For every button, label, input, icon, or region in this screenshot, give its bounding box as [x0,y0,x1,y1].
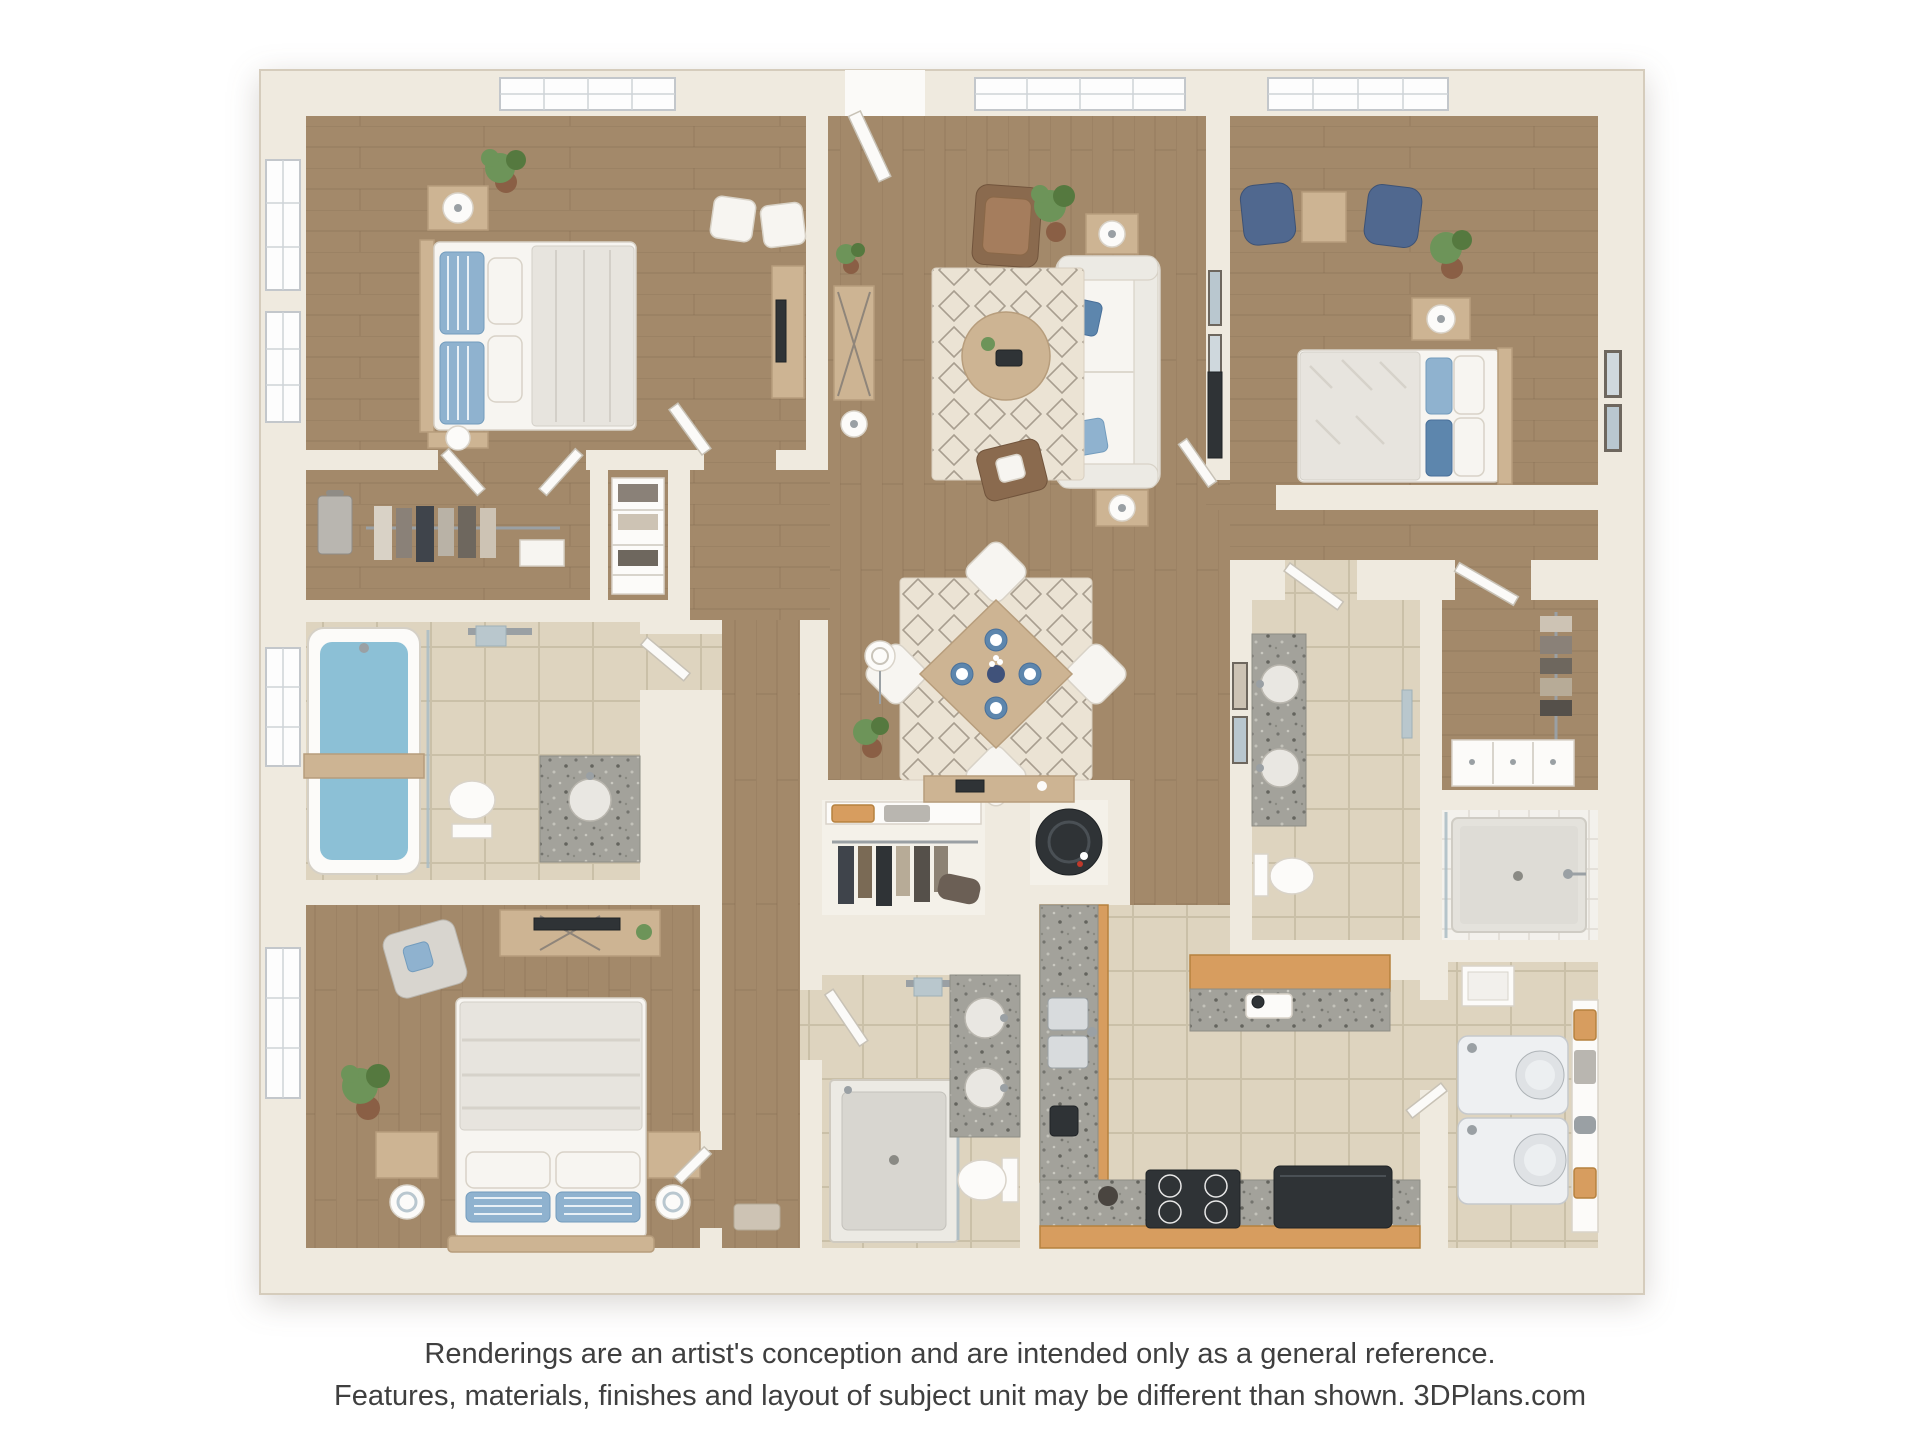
accent-chair [1363,183,1424,249]
walk-in-shower-room [1446,812,1586,938]
place-setting [951,663,973,685]
window [500,78,675,110]
door-mat [734,1204,780,1230]
iron [1574,1116,1596,1134]
wall-panel [1462,966,1514,1006]
desk [772,266,804,398]
floor-plan-image [0,0,1920,1440]
window [975,78,1185,110]
accent-chair [1239,181,1297,246]
bathtub [304,628,424,874]
disclaimer-line-2: Features, materials, finishes and layout… [0,1380,1920,1413]
side-table [1302,192,1346,242]
laundry-shelf [1572,1000,1598,1232]
place-setting [985,629,1007,651]
bed [420,240,636,432]
wall-tv [1208,372,1222,458]
dryer [1458,1036,1568,1114]
corridor-floor [722,620,800,1248]
hallway-floor [1130,780,1230,905]
small-appliance [1050,1106,1078,1136]
toilet [449,781,495,838]
end-table [1096,490,1148,526]
double-vanity [1252,634,1306,826]
entry-threshold [845,70,925,116]
floor-lamp [841,411,867,437]
basket [884,805,930,822]
nightstand [428,186,488,230]
base-cabinets [1040,1226,1420,1248]
bed [448,998,654,1252]
stool [709,195,756,242]
tv [534,918,620,930]
nightstand [1412,298,1470,340]
bath-tray [304,754,424,778]
stool [760,202,807,249]
drain [1513,871,1523,881]
hanging-clothes [1540,616,1572,716]
window [1268,78,1448,110]
refrigerator [1274,1166,1392,1228]
shower-head [1563,869,1573,879]
place-setting [985,697,1007,719]
stove [1146,1170,1240,1228]
hallway-floor [1230,510,1598,560]
double-vanity [950,975,1020,1137]
bed [1298,348,1512,484]
washer [1458,1118,1568,1204]
decor-bowl [1098,1186,1118,1206]
coffee-table [962,312,1050,400]
vanity [540,756,640,862]
peninsula-counter [1190,955,1390,1031]
towel [914,978,942,996]
toilet [958,1158,1018,1202]
walk-in-shower [830,1080,958,1242]
folded-linens [520,540,564,566]
sideboard [924,776,1074,802]
water-heater [1036,809,1102,875]
hall-floor [690,470,830,620]
window [266,948,300,1098]
suitcase [318,496,352,554]
end-table [1086,214,1138,254]
dresser [1452,740,1574,786]
window [266,160,300,290]
window [266,648,300,766]
media-console [500,910,660,956]
towel [1402,690,1412,738]
water-heater-closet [1036,809,1102,875]
place-setting [1019,663,1041,685]
closet-shelves [612,478,664,594]
console-table [834,286,874,400]
basket [832,805,874,822]
disclaimer-line-1: Renderings are an artist's conception an… [0,1338,1920,1371]
floor-plan-page: Renderings are an artist's conception an… [0,0,1920,1440]
window [266,312,300,422]
towel [476,626,506,646]
